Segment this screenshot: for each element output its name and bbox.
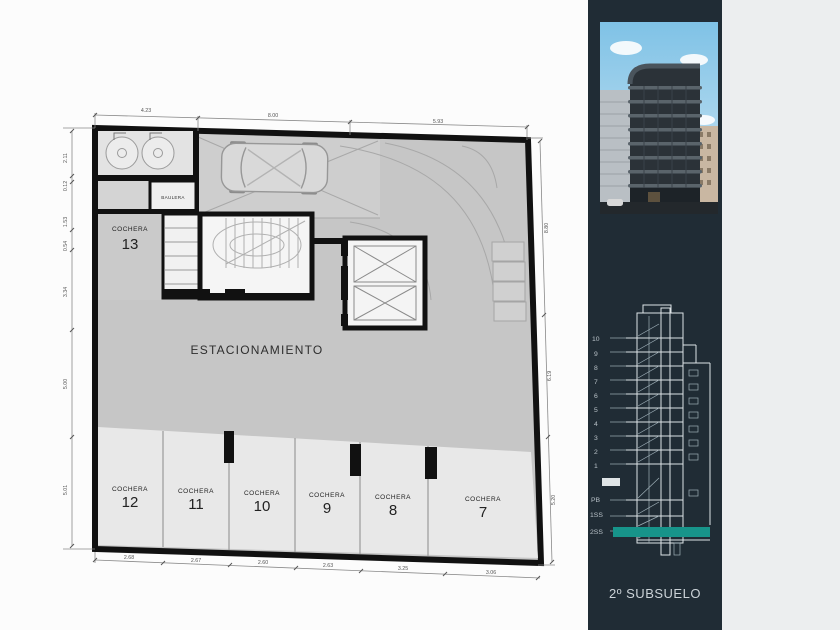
dim-left: 0.54 <box>63 241 69 251</box>
stall-label: COCHERA <box>309 492 345 499</box>
locker-strip <box>163 214 200 298</box>
stall-label: COCHERA <box>244 490 280 497</box>
dim-top: 5.93 <box>433 119 443 125</box>
stall-number: 11 <box>188 496 204 513</box>
section-floor-labels: 10 9 8 7 6 5 4 3 2 1 PB 1SS 2SS <box>590 336 603 536</box>
stall-number: 10 <box>254 498 271 515</box>
floor-label: PB <box>591 497 601 504</box>
right-guide-stalls <box>492 242 526 321</box>
stall-label: COCHERA <box>112 486 148 493</box>
car-top-view <box>221 141 328 195</box>
building-photo <box>600 22 718 214</box>
level-caption: 2º SUBSUELO <box>588 586 722 601</box>
dim-top: 8.00 <box>268 113 278 119</box>
dim-left: 2.11 <box>63 153 69 163</box>
dim-right: 8.80 <box>544 223 550 233</box>
cochera-13-number: 13 <box>122 236 139 253</box>
street-car <box>607 199 623 206</box>
dim-bottom: 2.67 <box>191 558 201 564</box>
floor-label: 7 <box>594 379 598 386</box>
dim-bottom: 2.60 <box>258 560 268 566</box>
baulera-room: BAULERA <box>98 175 196 214</box>
floor-label: 2 <box>594 449 598 456</box>
estacionamiento-label: ESTACIONAMIENTO <box>191 343 324 357</box>
floor-label: 1 <box>594 463 598 470</box>
dim-bottom: 3.25 <box>398 566 408 572</box>
floor-plan-drawing: BAULERA COCHERA 13 <box>0 0 588 630</box>
baulera-label: BAULERA <box>161 195 185 200</box>
floor-label: 1SS <box>590 512 603 519</box>
main-tower <box>628 66 702 206</box>
stall-number: 9 <box>323 500 331 517</box>
elevator-shafts <box>341 238 425 328</box>
floor-label: 5 <box>594 407 598 414</box>
dim-left: 1.53 <box>63 217 69 227</box>
stall-label: COCHERA <box>178 488 214 495</box>
right-gutter <box>722 0 840 630</box>
dim-bottom: 2.63 <box>323 563 333 569</box>
stall-label: COCHERA <box>465 496 501 503</box>
dim-left: 0.12 <box>63 181 69 191</box>
floor-label: 9 <box>594 351 598 358</box>
dim-left: 5.01 <box>63 485 69 495</box>
cochera-13-label: COCHERA <box>112 226 148 233</box>
stall-number: 7 <box>479 504 487 521</box>
dim-left: 3.34 <box>63 287 69 297</box>
building-section: 10 9 8 7 6 5 4 3 2 1 PB 1SS 2SS <box>588 300 722 560</box>
dim-bottom: 2.68 <box>124 555 134 561</box>
floor-label: 4 <box>594 421 598 428</box>
stall-number: 8 <box>389 502 397 519</box>
floor-plan-panel: BAULERA COCHERA 13 <box>0 0 588 630</box>
dim-left: 5.00 <box>63 379 69 389</box>
stall-label: COCHERA <box>375 494 411 501</box>
dim-right: 5.20 <box>551 495 557 505</box>
cochera-13: COCHERA 13 <box>98 214 163 300</box>
sidebar: 10 9 8 7 6 5 4 3 2 1 PB 1SS 2SS <box>588 0 722 630</box>
section-linework <box>602 305 710 555</box>
dim-top: 4.23 <box>141 108 151 114</box>
floor-label: 2SS <box>590 529 603 536</box>
floor-label: 3 <box>594 435 598 442</box>
highlighted-level-band <box>613 527 710 537</box>
floor-label: 8 <box>594 365 598 372</box>
floor-label: 6 <box>594 393 598 400</box>
stall-number: 12 <box>122 494 139 511</box>
listing-page: BAULERA COCHERA 13 <box>0 0 840 630</box>
dim-right: 6.19 <box>547 371 553 381</box>
dim-bottom: 3.06 <box>486 570 496 576</box>
floor-label: 10 <box>592 336 600 343</box>
